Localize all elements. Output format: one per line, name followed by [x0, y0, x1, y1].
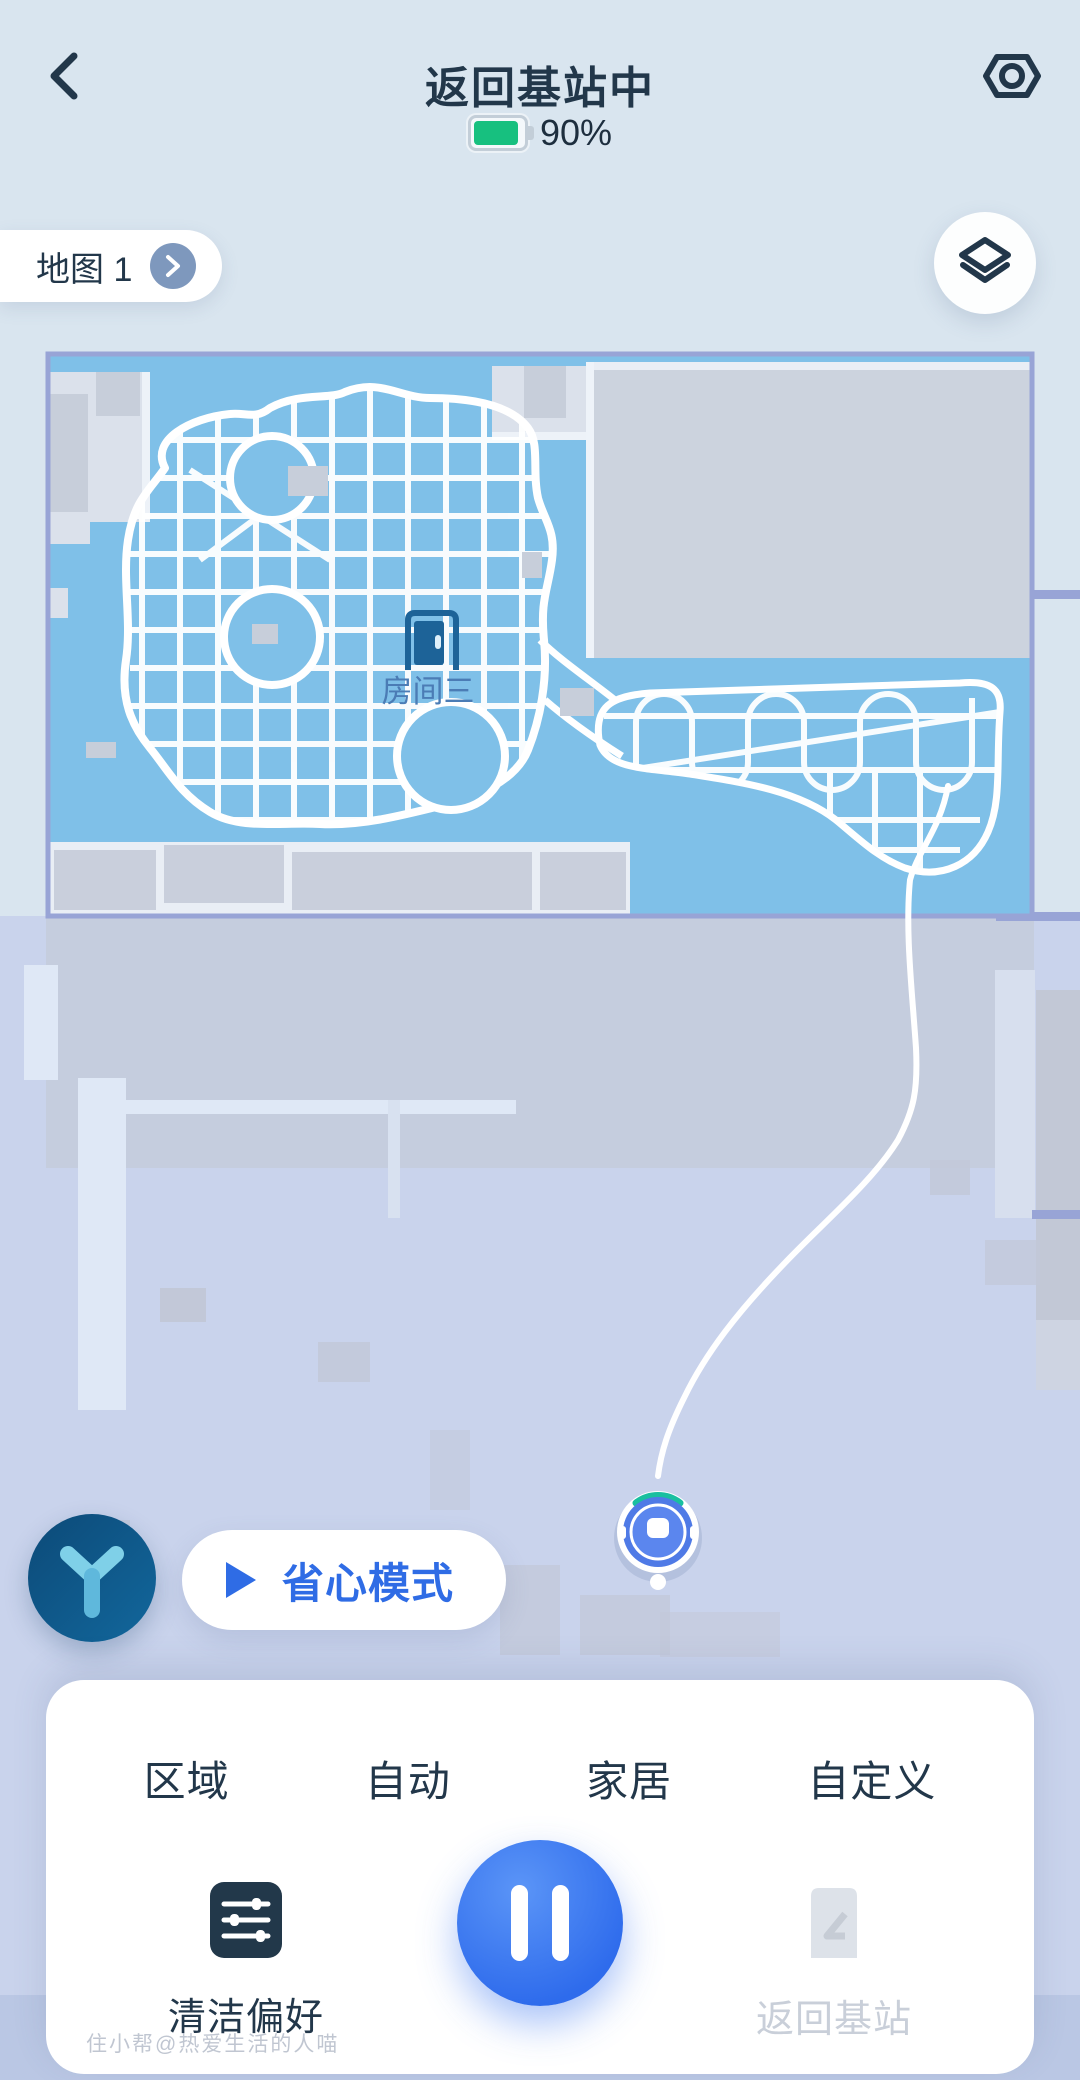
pause-button[interactable] — [457, 1840, 623, 2006]
return-to-dock-label: 返回基站 — [756, 1988, 912, 2043]
chevron-right-icon — [150, 243, 196, 289]
battery-percent: 90% — [540, 112, 612, 154]
bottom-sheet: 区域 自动 家居 自定义 清洁偏好 — [46, 1680, 1034, 2074]
sliders-icon — [208, 1880, 284, 1960]
map-name: 地图 1 — [36, 242, 132, 291]
cleaning-preferences-button[interactable]: 清洁偏好 — [146, 1880, 346, 2041]
gear-icon — [980, 44, 1044, 108]
tab-auto[interactable]: 自动 — [355, 1742, 461, 1815]
map-selector[interactable]: 地图 1 — [0, 230, 222, 302]
unexplored-room — [594, 370, 1030, 658]
page-title: 返回基站中 — [0, 52, 1080, 116]
dock-return-icon — [799, 1884, 869, 1962]
tab-home[interactable]: 家居 — [576, 1742, 682, 1815]
battery-icon — [468, 115, 528, 151]
brand-logo — [28, 1514, 156, 1642]
pause-icon — [511, 1885, 528, 1961]
easy-mode-label: 省心模式 — [282, 1550, 454, 1611]
header: 返回基站中 90% — [0, 0, 1080, 180]
tab-custom[interactable]: 自定义 — [797, 1742, 946, 1815]
settings-button[interactable] — [980, 44, 1044, 108]
map-layers-button[interactable] — [934, 212, 1036, 314]
return-to-dock-button[interactable]: 返回基站 — [734, 1884, 934, 2043]
clean-mode-tabs: 区域 自动 家居 自定义 — [76, 1742, 1004, 1815]
play-icon — [222, 1560, 258, 1600]
room-label: 房间三 — [382, 674, 475, 709]
robot-vacuum-app-screen: 房间三 返回基站中 90% — [0, 0, 1080, 2080]
easy-mode-button[interactable]: 省心模式 — [182, 1530, 506, 1630]
layers-icon — [956, 234, 1014, 292]
battery-status: 90% — [0, 112, 1080, 154]
tab-zone[interactable]: 区域 — [134, 1742, 240, 1815]
watermark: 住小帮@热爱生活的人喵 — [86, 2028, 339, 2058]
